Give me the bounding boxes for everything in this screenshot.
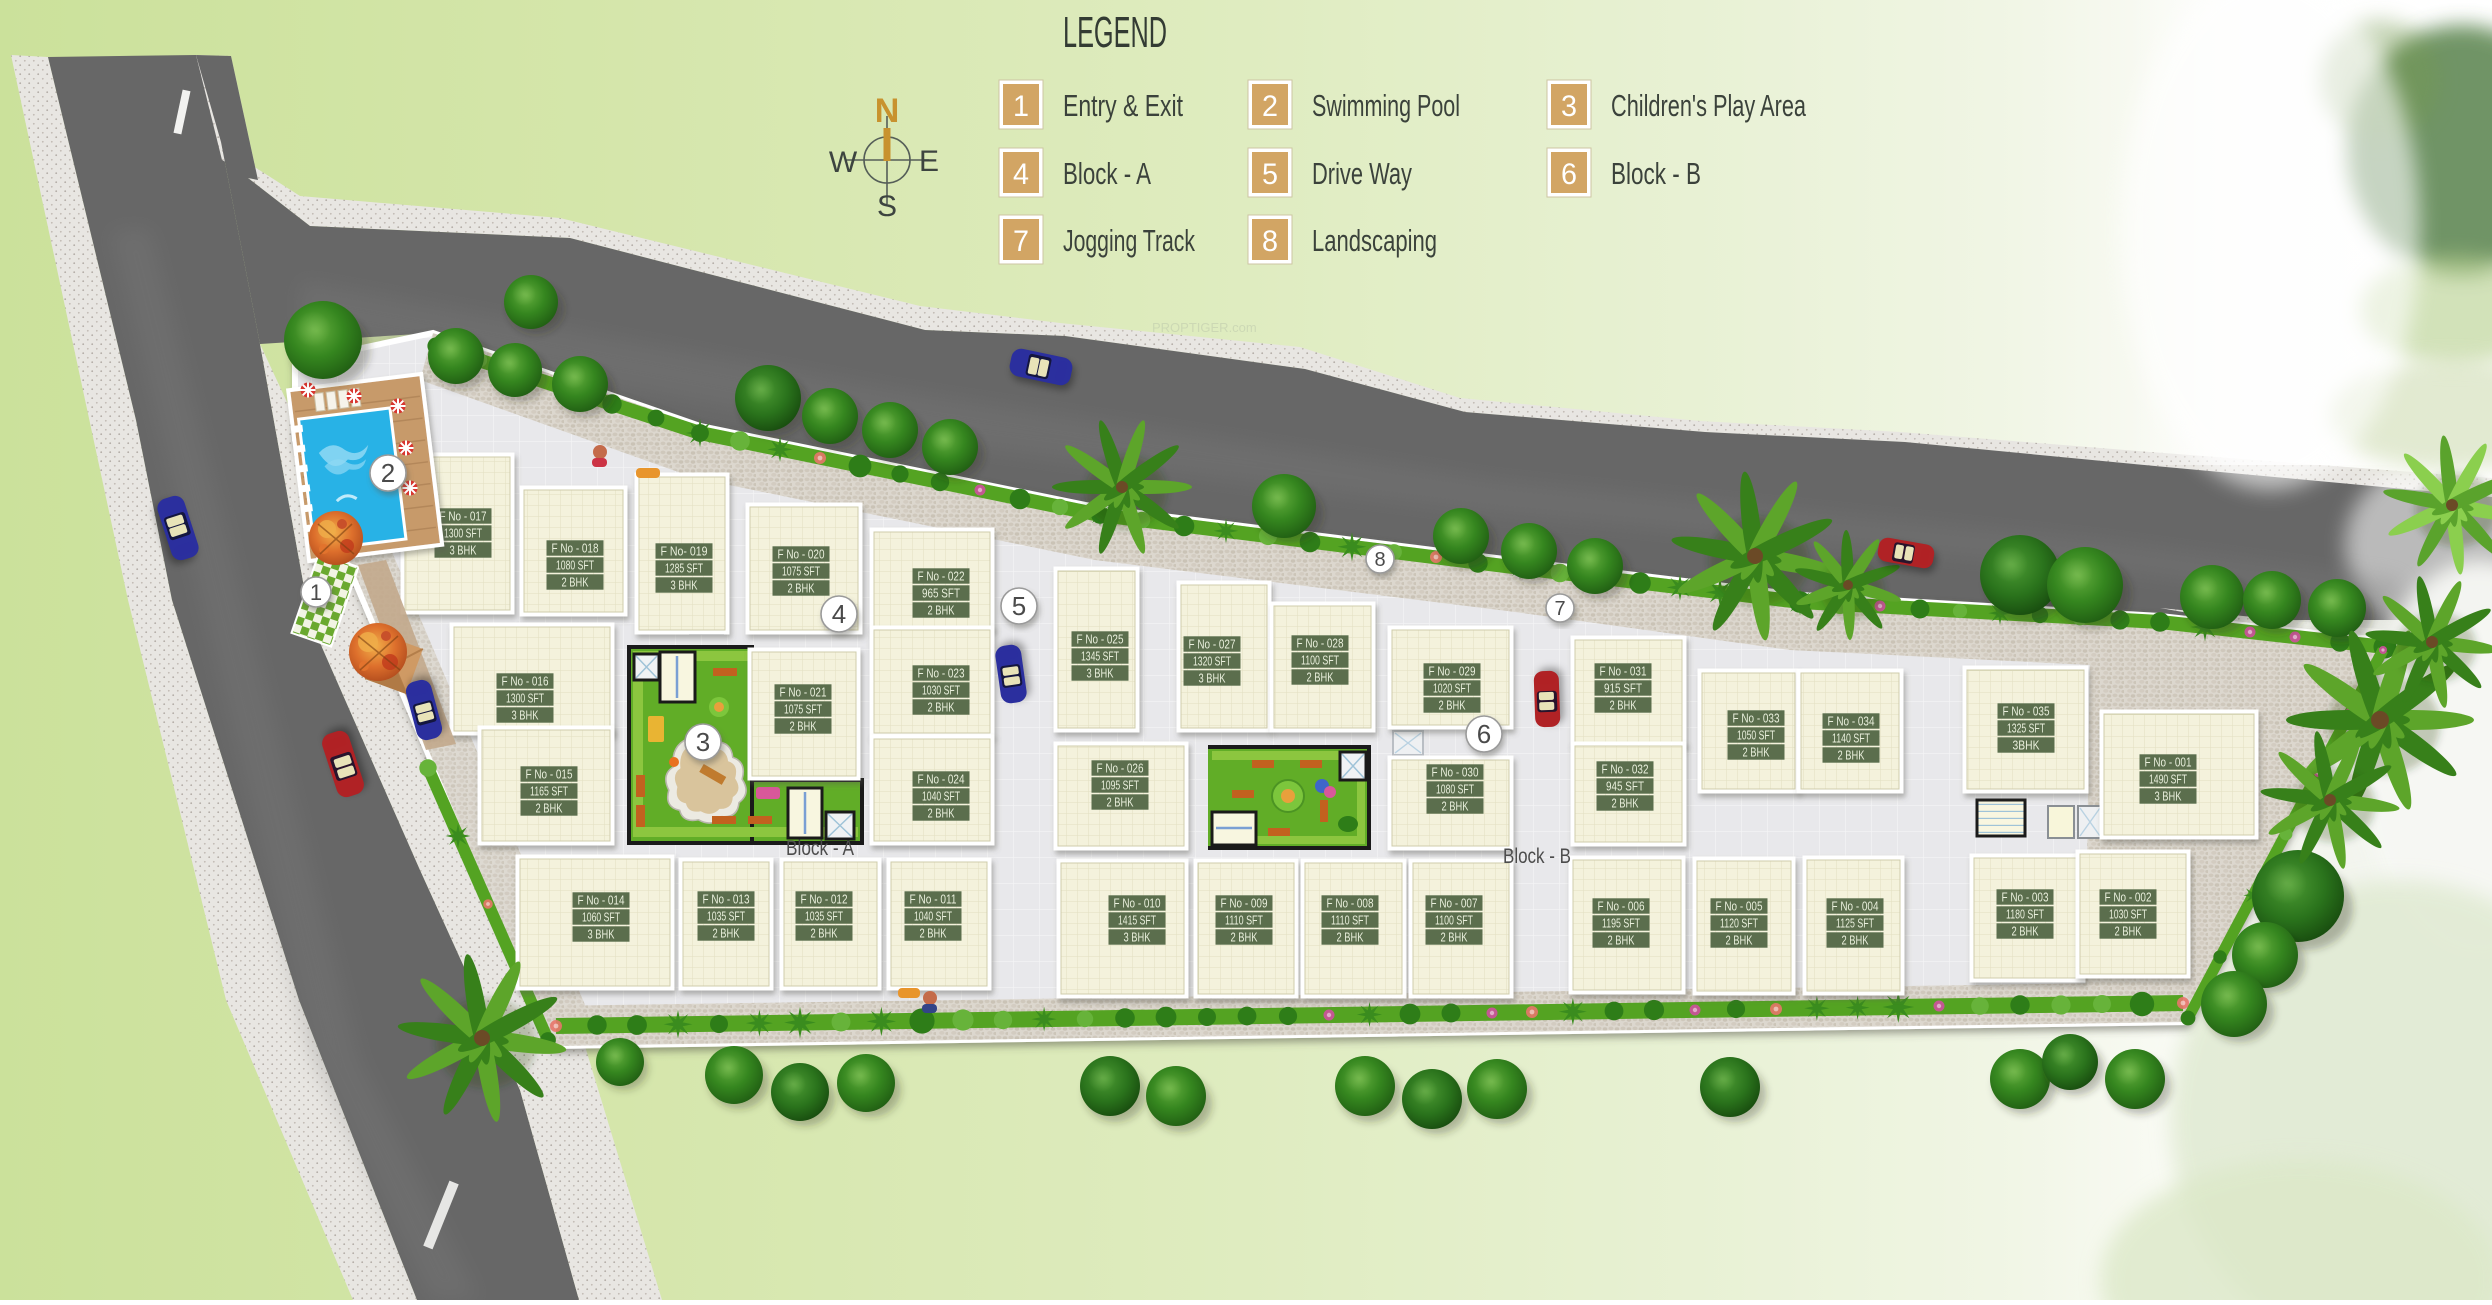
- svg-text:1030 SFT: 1030 SFT: [922, 682, 960, 697]
- svg-text:1030 SFT: 1030 SFT: [2109, 906, 2147, 921]
- svg-text:F No - 011: F No - 011: [910, 891, 957, 906]
- svg-text:F No - 003: F No - 003: [2002, 889, 2049, 904]
- svg-text:3 BHK: 3 BHK: [1199, 670, 1226, 685]
- svg-text:F No - 028: F No - 028: [1297, 635, 1344, 650]
- svg-text:2 BHK: 2 BHK: [1439, 697, 1466, 712]
- svg-text:Block - B: Block - B: [1503, 845, 1571, 868]
- svg-text:F No- 019: F No- 019: [661, 543, 708, 558]
- svg-text:2 BHK: 2 BHK: [788, 580, 815, 595]
- svg-text:F No - 023: F No - 023: [918, 665, 965, 680]
- svg-text:1125 SFT: 1125 SFT: [1836, 915, 1874, 930]
- svg-text:1035 SFT: 1035 SFT: [805, 908, 843, 923]
- svg-text:3 BHK: 3 BHK: [1124, 929, 1151, 944]
- svg-text:3 BHK: 3 BHK: [588, 926, 615, 941]
- svg-text:Landscaping: Landscaping: [1312, 223, 1437, 258]
- svg-text:2 BHK: 2 BHK: [1612, 795, 1639, 810]
- svg-text:2: 2: [381, 458, 395, 488]
- svg-text:Entry & Exit: Entry & Exit: [1063, 88, 1183, 123]
- svg-text:5: 5: [1012, 591, 1026, 621]
- svg-text:F No - 026: F No - 026: [1097, 760, 1144, 775]
- svg-text:2 BHK: 2 BHK: [562, 574, 589, 589]
- svg-text:F No - 005: F No - 005: [1716, 898, 1763, 913]
- svg-text:Block - A: Block - A: [786, 837, 854, 860]
- svg-text:2 BHK: 2 BHK: [1337, 929, 1364, 944]
- svg-text:1490 SFT: 1490 SFT: [2149, 771, 2187, 786]
- svg-text:2 BHK: 2 BHK: [790, 718, 817, 733]
- svg-text:F No - 014: F No - 014: [578, 892, 625, 907]
- svg-text:F No - 033: F No - 033: [1733, 710, 1780, 725]
- svg-text:F No - 009: F No - 009: [1221, 895, 1268, 910]
- svg-text:2 BHK: 2 BHK: [928, 699, 955, 714]
- svg-text:F No - 034: F No - 034: [1828, 713, 1875, 728]
- svg-text:S: S: [877, 190, 897, 223]
- svg-text:1040 SFT: 1040 SFT: [922, 788, 960, 803]
- svg-text:F No - 001: F No - 001: [2145, 754, 2192, 769]
- svg-text:F No - 002: F No - 002: [2105, 889, 2152, 904]
- svg-text:F No - 032: F No - 032: [1602, 761, 1649, 776]
- svg-text:1300 SFT: 1300 SFT: [444, 525, 482, 540]
- svg-text:LEGEND: LEGEND: [1063, 8, 1167, 57]
- svg-text:3 BHK: 3 BHK: [2155, 788, 2182, 803]
- svg-text:3 BHK: 3 BHK: [512, 707, 539, 722]
- svg-text:F No - 035: F No - 035: [2003, 703, 2050, 718]
- svg-text:F No - 006: F No - 006: [1598, 898, 1645, 913]
- svg-text:2 BHK: 2 BHK: [928, 602, 955, 617]
- svg-text:F No - 008: F No - 008: [1327, 895, 1374, 910]
- svg-text:2 BHK: 2 BHK: [1441, 929, 1468, 944]
- svg-text:F No - 013: F No - 013: [703, 891, 750, 906]
- svg-text:2 BHK: 2 BHK: [1842, 932, 1869, 947]
- svg-text:F No - 018: F No - 018: [552, 540, 599, 555]
- svg-text:1285 SFT: 1285 SFT: [665, 560, 703, 575]
- svg-text:PROPTIGER.com: PROPTIGER.com: [1152, 320, 1257, 335]
- svg-text:2 BHK: 2 BHK: [2012, 923, 2039, 938]
- svg-text:F No - 016: F No - 016: [502, 673, 549, 688]
- svg-text:F No - 017: F No - 017: [440, 508, 487, 523]
- svg-text:2 BHK: 2 BHK: [920, 925, 947, 940]
- svg-text:4: 4: [1013, 158, 1029, 191]
- svg-text:4: 4: [832, 599, 846, 629]
- svg-text:3: 3: [696, 727, 710, 757]
- svg-text:8: 8: [1262, 225, 1278, 258]
- svg-text:1165 SFT: 1165 SFT: [530, 783, 568, 798]
- svg-text:3 BHK: 3 BHK: [671, 577, 698, 592]
- svg-text:1060 SFT: 1060 SFT: [582, 909, 620, 924]
- svg-text:Drive Way: Drive Way: [1312, 156, 1412, 191]
- svg-text:F No - 022: F No - 022: [918, 568, 965, 583]
- svg-text:F No - 021: F No - 021: [780, 684, 827, 699]
- svg-text:2 BHK: 2 BHK: [2115, 923, 2142, 938]
- svg-text:6: 6: [1477, 719, 1491, 749]
- svg-text:1040 SFT: 1040 SFT: [914, 908, 952, 923]
- svg-text:2 BHK: 2 BHK: [1307, 669, 1334, 684]
- svg-text:2 BHK: 2 BHK: [1743, 744, 1770, 759]
- svg-text:1120 SFT: 1120 SFT: [1720, 915, 1758, 930]
- svg-text:965 SFT: 965 SFT: [922, 585, 960, 600]
- svg-text:2 BHK: 2 BHK: [1838, 747, 1865, 762]
- svg-text:6: 6: [1561, 158, 1577, 191]
- svg-text:E: E: [919, 145, 939, 178]
- svg-text:F No - 015: F No - 015: [526, 766, 573, 781]
- svg-text:915 SFT: 915 SFT: [1604, 680, 1642, 695]
- svg-text:7: 7: [1554, 598, 1565, 620]
- svg-text:1110 SFT: 1110 SFT: [1225, 912, 1263, 927]
- svg-text:2 BHK: 2 BHK: [928, 805, 955, 820]
- svg-text:1110 SFT: 1110 SFT: [1331, 912, 1369, 927]
- svg-text:2 BHK: 2 BHK: [1231, 929, 1258, 944]
- svg-text:F No - 024: F No - 024: [918, 771, 965, 786]
- svg-text:F No - 012: F No - 012: [801, 891, 848, 906]
- svg-text:1180 SFT: 1180 SFT: [2006, 906, 2044, 921]
- svg-text:F No - 027: F No - 027: [1189, 636, 1236, 651]
- svg-text:2 BHK: 2 BHK: [1608, 932, 1635, 947]
- svg-text:3BHK: 3BHK: [2013, 737, 2040, 752]
- svg-text:945 SFT: 945 SFT: [1606, 778, 1644, 793]
- svg-text:1100 SFT: 1100 SFT: [1435, 912, 1473, 927]
- svg-text:1320 SFT: 1320 SFT: [1193, 653, 1231, 668]
- svg-text:3 BHK: 3 BHK: [1087, 665, 1114, 680]
- svg-text:F No - 025: F No - 025: [1077, 631, 1124, 646]
- svg-text:1080 SFT: 1080 SFT: [1436, 781, 1474, 796]
- svg-text:2 BHK: 2 BHK: [1610, 697, 1637, 712]
- svg-text:2 BHK: 2 BHK: [1726, 932, 1753, 947]
- svg-text:1: 1: [310, 580, 322, 605]
- svg-text:1080 SFT: 1080 SFT: [556, 557, 594, 572]
- svg-text:1300 SFT: 1300 SFT: [506, 690, 544, 705]
- svg-text:2 BHK: 2 BHK: [1107, 794, 1134, 809]
- svg-text:3 BHK: 3 BHK: [450, 542, 477, 557]
- svg-text:Swimming Pool: Swimming Pool: [1312, 88, 1460, 123]
- svg-text:1035 SFT: 1035 SFT: [707, 908, 745, 923]
- svg-text:F No - 029: F No - 029: [1429, 663, 1476, 678]
- svg-text:1415 SFT: 1415 SFT: [1118, 912, 1156, 927]
- svg-text:F No - 030: F No - 030: [1432, 764, 1479, 779]
- svg-text:1195 SFT: 1195 SFT: [1602, 915, 1640, 930]
- svg-text:F No - 031: F No - 031: [1600, 663, 1647, 678]
- svg-text:1020 SFT: 1020 SFT: [1433, 680, 1471, 695]
- svg-text:8: 8: [1374, 549, 1385, 571]
- svg-text:2: 2: [1262, 90, 1278, 123]
- svg-text:N: N: [875, 92, 900, 130]
- svg-text:Block - B: Block - B: [1611, 156, 1701, 191]
- svg-text:1345 SFT: 1345 SFT: [1081, 648, 1119, 663]
- svg-text:1: 1: [1013, 90, 1029, 123]
- svg-text:1140 SFT: 1140 SFT: [1832, 730, 1870, 745]
- svg-text:W: W: [829, 146, 858, 179]
- svg-text:F No - 010: F No - 010: [1114, 895, 1161, 910]
- svg-text:2 BHK: 2 BHK: [811, 925, 838, 940]
- svg-text:Jogging Track: Jogging Track: [1063, 223, 1195, 258]
- svg-text:2 BHK: 2 BHK: [713, 925, 740, 940]
- svg-text:1325 SFT: 1325 SFT: [2007, 720, 2045, 735]
- svg-text:Block - A: Block - A: [1063, 156, 1151, 191]
- svg-text:7: 7: [1013, 225, 1029, 258]
- svg-text:3: 3: [1561, 90, 1577, 123]
- svg-text:1050 SFT: 1050 SFT: [1737, 727, 1775, 742]
- svg-text:1075 SFT: 1075 SFT: [784, 701, 822, 716]
- svg-text:1095 SFT: 1095 SFT: [1101, 777, 1139, 792]
- svg-text:Children's Play Area: Children's Play Area: [1611, 88, 1807, 123]
- svg-text:5: 5: [1262, 158, 1278, 191]
- svg-text:1075 SFT: 1075 SFT: [782, 563, 820, 578]
- svg-text:2 BHK: 2 BHK: [536, 800, 563, 815]
- svg-text:F No - 004: F No - 004: [1832, 898, 1879, 913]
- svg-text:2 BHK: 2 BHK: [1442, 798, 1469, 813]
- svg-text:F No - 007: F No - 007: [1431, 895, 1478, 910]
- svg-text:F No - 020: F No - 020: [778, 546, 825, 561]
- svg-text:1100 SFT: 1100 SFT: [1301, 652, 1339, 667]
